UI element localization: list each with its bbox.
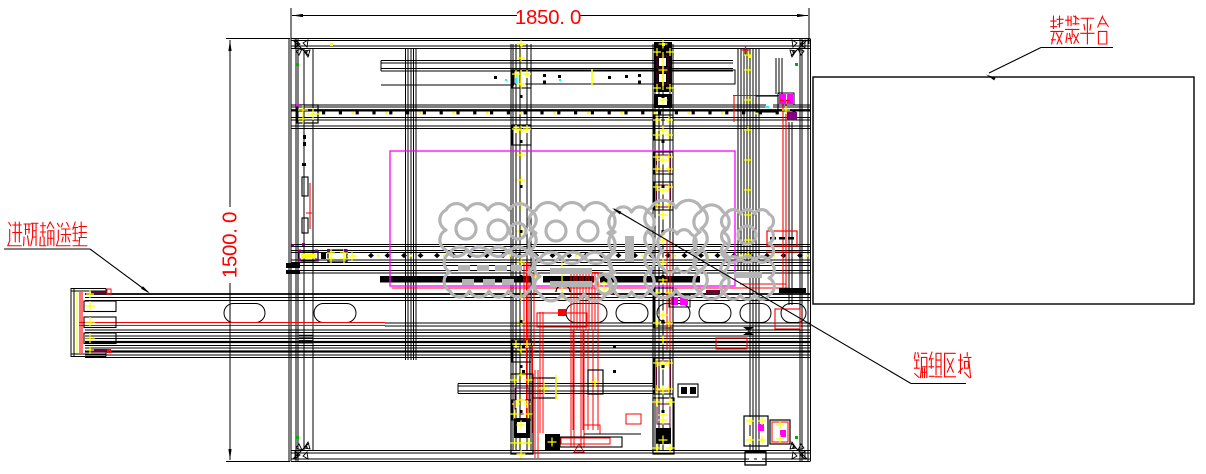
svg-text:1850. 0: 1850. 0 [515,6,581,29]
svg-text:1500. 0: 1500. 0 [219,212,242,278]
